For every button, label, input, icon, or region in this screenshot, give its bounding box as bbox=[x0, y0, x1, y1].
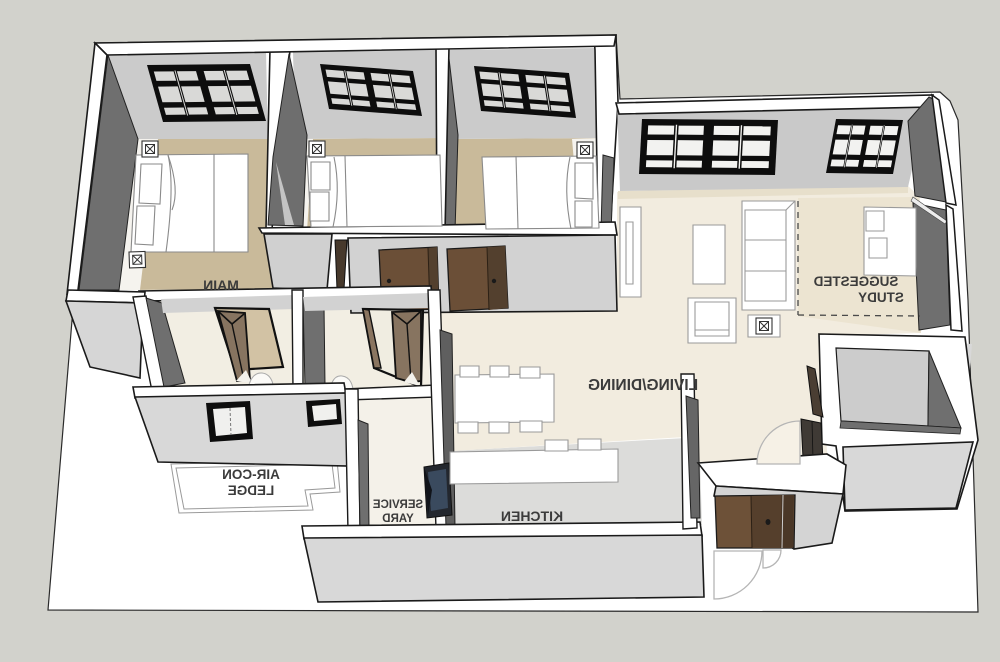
svg-text:SERVICE: SERVICE bbox=[373, 499, 424, 511]
svg-text:YARD: YARD bbox=[382, 513, 414, 525]
svg-text:AIR-CON: AIR-CON bbox=[222, 467, 280, 482]
svg-text:SUGGESTED: SUGGESTED bbox=[813, 274, 898, 289]
svg-text:STUDY: STUDY bbox=[858, 290, 904, 305]
svg-text:MAIN: MAIN bbox=[203, 277, 239, 293]
svg-text:KITCHEN: KITCHEN bbox=[501, 508, 563, 524]
svg-text:LEDGE: LEDGE bbox=[228, 483, 275, 498]
svg-text:LIVING/DINING: LIVING/DINING bbox=[588, 377, 698, 394]
